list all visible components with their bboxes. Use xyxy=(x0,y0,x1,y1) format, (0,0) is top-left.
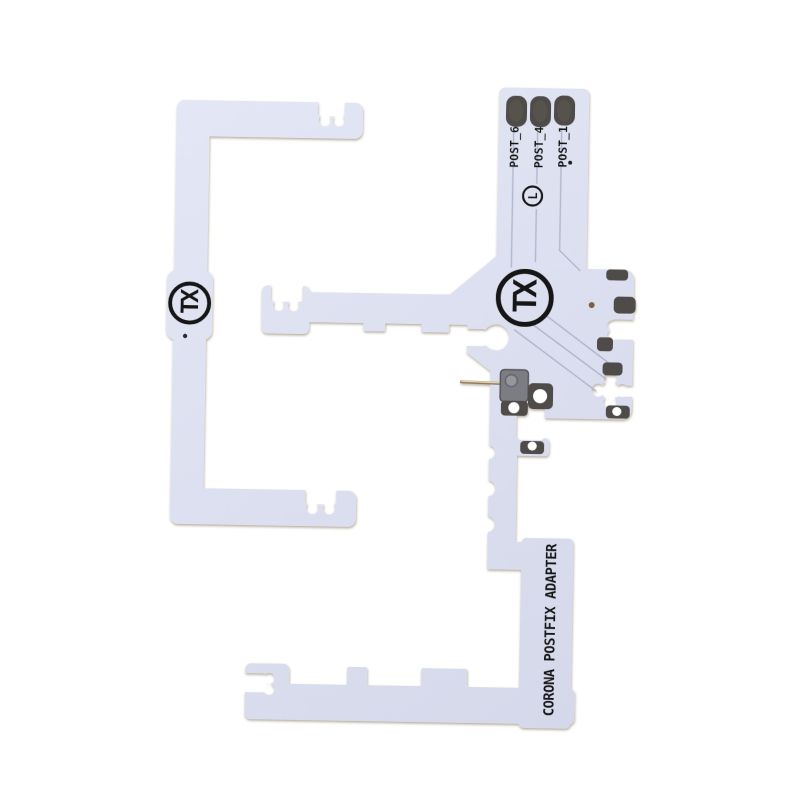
tx-logo-main-text: TX xyxy=(506,279,545,314)
post-pads xyxy=(506,95,576,128)
solder-pad xyxy=(614,296,636,313)
pcb-photo-canvas: TX xyxy=(0,0,800,800)
solder-pad xyxy=(602,362,622,375)
solder-pad xyxy=(606,269,628,280)
post-label-4: POST_4 xyxy=(532,126,548,168)
main-adapter-board: POST_6 POST_4 POST_1 L TX xyxy=(244,83,639,730)
solder-pad xyxy=(597,337,613,351)
post-labels: POST_6 POST_4 POST_1 xyxy=(507,125,573,169)
certification-mark-text: L xyxy=(526,192,540,199)
post-label-6: POST_6 xyxy=(507,126,523,168)
main-board-outline xyxy=(244,83,637,730)
adapter-title: CORONA POSTFIX ADAPTER xyxy=(541,543,560,717)
product-photo: TX xyxy=(0,0,800,800)
